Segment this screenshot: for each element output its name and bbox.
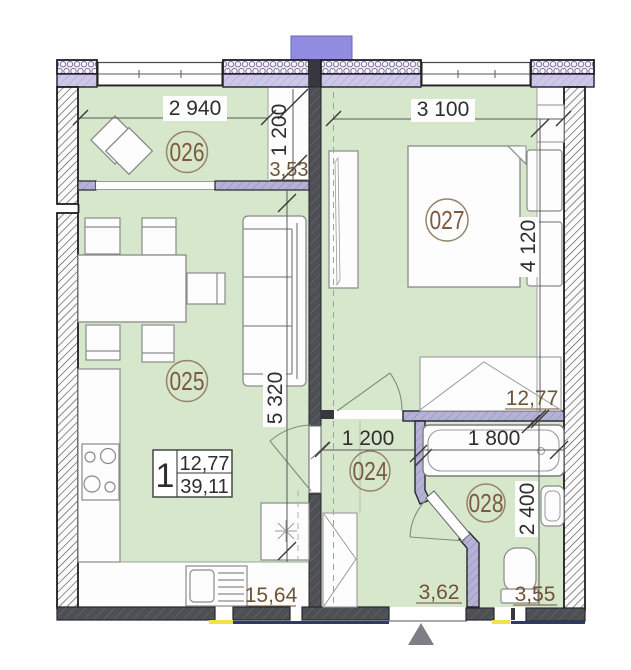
svg-text:3,62: 3,62: [419, 581, 460, 604]
svg-text:12,77: 12,77: [179, 453, 229, 475]
svg-text:3,55: 3,55: [515, 583, 556, 606]
svg-text:1: 1: [156, 457, 175, 495]
svg-text:15,64: 15,64: [245, 584, 298, 607]
svg-text:1 200: 1 200: [342, 427, 395, 450]
svg-text:3,53: 3,53: [270, 159, 309, 181]
svg-text:025: 025: [170, 366, 205, 396]
svg-text:027: 027: [430, 205, 465, 235]
svg-text:1 200: 1 200: [268, 104, 291, 157]
svg-text:026: 026: [170, 137, 205, 167]
svg-text:39,11: 39,11: [180, 476, 229, 498]
svg-text:4 120: 4 120: [517, 220, 540, 273]
svg-text:2 940: 2 940: [169, 97, 222, 120]
svg-text:12,77: 12,77: [506, 387, 559, 410]
svg-text:5 320: 5 320: [264, 372, 287, 425]
svg-text:2 400: 2 400: [516, 483, 539, 536]
svg-text:3 100: 3 100: [417, 98, 470, 121]
svg-text:028: 028: [469, 488, 504, 518]
svg-text:024: 024: [353, 456, 388, 486]
svg-text:1 800: 1 800: [468, 427, 521, 450]
